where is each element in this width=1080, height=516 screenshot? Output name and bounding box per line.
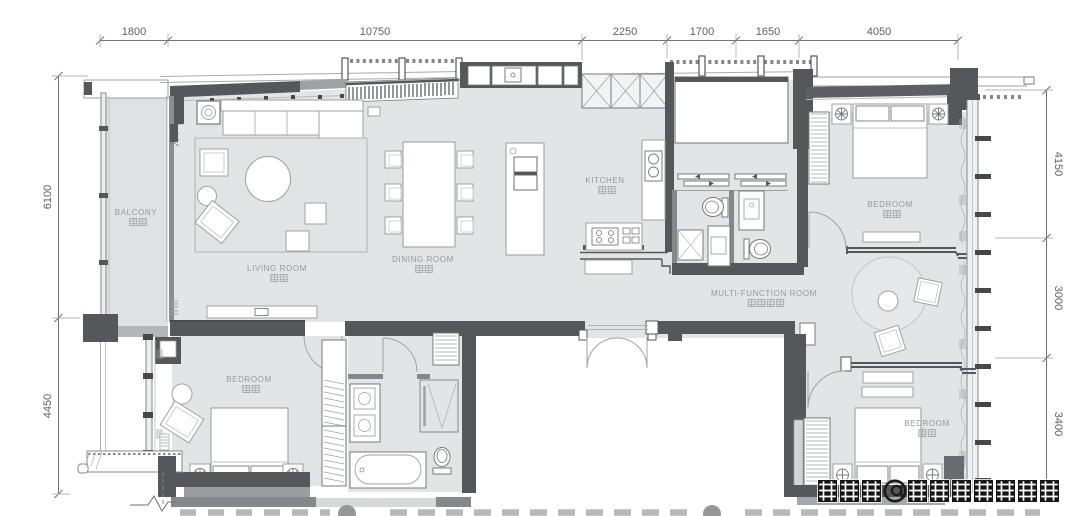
svg-text:6100: 6100: [42, 185, 54, 209]
svg-text:BEDROOM: BEDROOM: [226, 375, 272, 384]
svg-text:4450: 4450: [42, 394, 54, 418]
svg-text:LIVING ROOM: LIVING ROOM: [247, 264, 307, 273]
svg-text:DINING ROOM: DINING ROOM: [392, 255, 454, 264]
svg-text:4150: 4150: [1052, 152, 1064, 176]
svg-text:BEDROOM: BEDROOM: [867, 200, 913, 209]
svg-text:KITCHEN: KITCHEN: [585, 176, 624, 185]
svg-text:1700: 1700: [690, 26, 714, 38]
svg-text:10750: 10750: [360, 26, 391, 38]
svg-text:MULTI-FUNCTION ROOM: MULTI-FUNCTION ROOM: [711, 289, 817, 298]
svg-text:BEDROOM: BEDROOM: [904, 419, 950, 428]
svg-text:1800: 1800: [122, 26, 146, 38]
svg-text:1650: 1650: [756, 26, 780, 38]
svg-text:BALCONY: BALCONY: [115, 208, 157, 217]
svg-text:3400: 3400: [1052, 412, 1064, 436]
svg-text:2250: 2250: [613, 26, 637, 38]
svg-text:4050: 4050: [867, 26, 891, 38]
svg-text:3000: 3000: [1052, 286, 1064, 310]
